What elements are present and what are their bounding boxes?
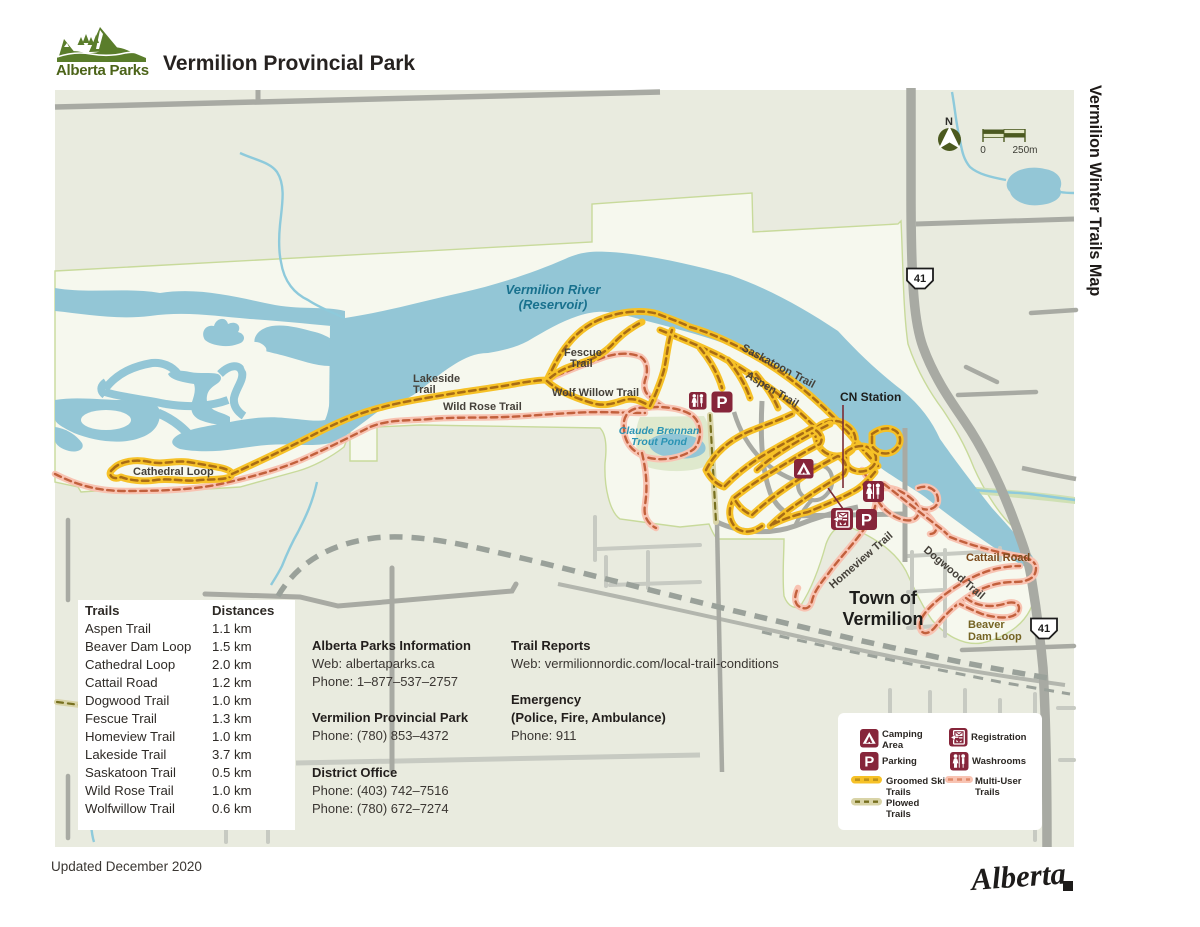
svg-text:Web: vermilionnordic.com/local: Web: vermilionnordic.com/local-trail-con… [511,656,779,671]
svg-text:Vermilion River: Vermilion River [506,282,602,297]
svg-text:Homeview Trail: Homeview Trail [85,729,175,744]
svg-text:0: 0 [980,145,986,156]
svg-text:Dam Loop: Dam Loop [968,631,1022,643]
svg-text:P: P [861,510,872,529]
svg-text:Town of: Town of [849,588,918,608]
svg-text:1.5 km: 1.5 km [212,639,252,654]
svg-text:Phone: (780) 672–7274: Phone: (780) 672–7274 [312,801,449,816]
svg-text:Vermilion Provincial Park: Vermilion Provincial Park [312,710,469,725]
svg-text:Registration: Registration [971,732,1027,743]
svg-text:1.0 km: 1.0 km [212,783,252,798]
svg-text:Plowed: Plowed [886,798,919,809]
svg-text:(Reservoir): (Reservoir) [519,297,588,312]
svg-text:Fescue Trail: Fescue Trail [85,711,157,726]
svg-text:Cathedral Loop: Cathedral Loop [85,657,175,672]
svg-text:1.1 km: 1.1 km [212,621,252,636]
svg-text:Wolfwillow Trail: Wolfwillow Trail [85,801,175,816]
svg-text:2.0 km: 2.0 km [212,657,252,672]
svg-text:Trout Pond: Trout Pond [631,436,687,448]
svg-text:Wild Rose Trail: Wild Rose Trail [85,783,174,798]
svg-text:Phone: 1–877–537–2757: Phone: 1–877–537–2757 [312,674,458,689]
svg-text:Beaver Dam Loop: Beaver Dam Loop [85,639,191,654]
svg-text:Dogwood Trail: Dogwood Trail [85,693,169,708]
svg-text:Camping: Camping [882,729,923,740]
svg-text:Beaver: Beaver [968,619,1005,631]
svg-text:Wolf Willow Trail: Wolf Willow Trail [552,387,639,399]
svg-text:0.5 km: 0.5 km [212,765,252,780]
svg-text:Wild Rose Trail: Wild Rose Trail [443,401,522,413]
svg-text:Washrooms: Washrooms [972,756,1026,767]
svg-text:Trail Reports: Trail Reports [511,638,590,653]
svg-text:Trails: Trails [886,787,911,798]
svg-text:P: P [716,393,727,412]
svg-text:Trails: Trails [85,603,119,618]
svg-text:1.0 km: 1.0 km [212,729,252,744]
svg-text:1.3 km: 1.3 km [212,711,252,726]
svg-text:Vermilion Provincial Park: Vermilion Provincial Park [163,52,415,75]
svg-text:Lakeside Trail: Lakeside Trail [85,747,166,762]
svg-text:District Office: District Office [312,765,397,780]
svg-text:Aspen Trail: Aspen Trail [85,621,151,636]
svg-text:Trails: Trails [975,787,1000,798]
svg-text:Vermilion Winter Trails Map: Vermilion Winter Trails Map [1086,85,1104,296]
svg-text:0.6 km: 0.6 km [212,801,252,816]
svg-text:3.7 km: 3.7 km [212,747,252,762]
svg-text:Phone: 911: Phone: 911 [511,728,577,743]
svg-text:P: P [864,754,874,770]
svg-text:(Police, Fire, Ambulance): (Police, Fire, Ambulance) [511,710,666,725]
svg-text:Trails: Trails [886,809,911,820]
svg-text:Web: albertaparks.ca: Web: albertaparks.ca [312,656,435,671]
svg-text:N: N [945,116,953,128]
svg-text:Saskatoon Trail: Saskatoon Trail [85,765,176,780]
svg-text:Alberta Parks Information: Alberta Parks Information [312,638,471,653]
svg-text:Groomed Ski: Groomed Ski [886,776,945,787]
svg-text:1.0 km: 1.0 km [212,693,252,708]
svg-text:CN Station: CN Station [840,390,901,404]
svg-text:Multi-User: Multi-User [975,776,1022,787]
svg-text:41: 41 [1038,623,1050,635]
svg-text:Emergency: Emergency [511,692,582,707]
svg-text:Phone: (403) 742–7516: Phone: (403) 742–7516 [312,783,449,798]
svg-text:Cattail Road: Cattail Road [966,552,1030,564]
svg-text:250m: 250m [1012,145,1037,156]
svg-text:Cathedral Loop: Cathedral Loop [133,466,214,478]
svg-text:Alberta: Alberta [968,855,1067,897]
svg-text:Trail: Trail [413,384,436,396]
svg-text:Phone: (780) 853–4372: Phone: (780) 853–4372 [312,728,449,743]
svg-text:Cattail Road: Cattail Road [85,675,158,690]
svg-text:Updated December 2020: Updated December 2020 [51,859,202,874]
svg-text:Alberta Parks: Alberta Parks [56,62,149,79]
svg-text:Area: Area [882,740,904,751]
svg-text:1.2 km: 1.2 km [212,675,252,690]
svg-text:41: 41 [914,273,926,285]
svg-text:Trail: Trail [570,358,593,370]
svg-text:Vermilion: Vermilion [842,609,923,629]
svg-text:Parking: Parking [882,756,917,767]
svg-text:Distances: Distances [212,603,274,618]
